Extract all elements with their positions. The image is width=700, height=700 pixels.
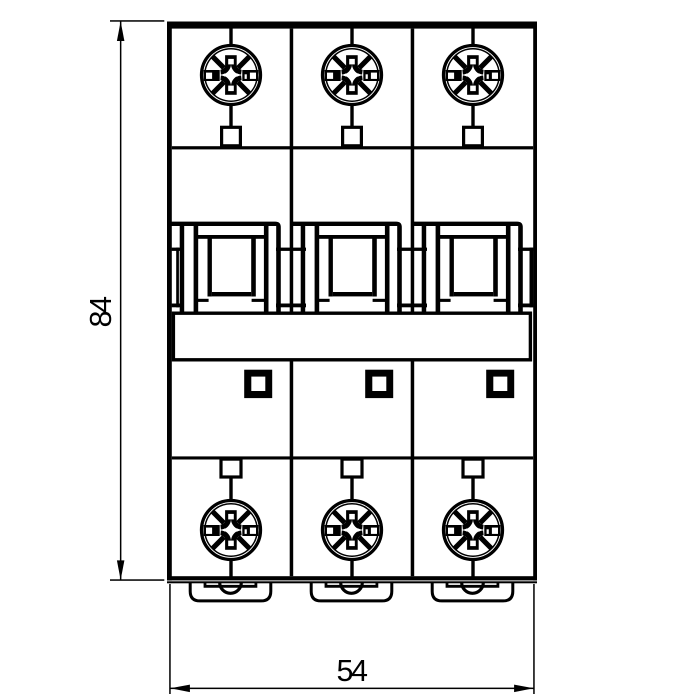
svg-text:84: 84 (84, 296, 118, 327)
svg-text:54: 54 (337, 654, 368, 688)
